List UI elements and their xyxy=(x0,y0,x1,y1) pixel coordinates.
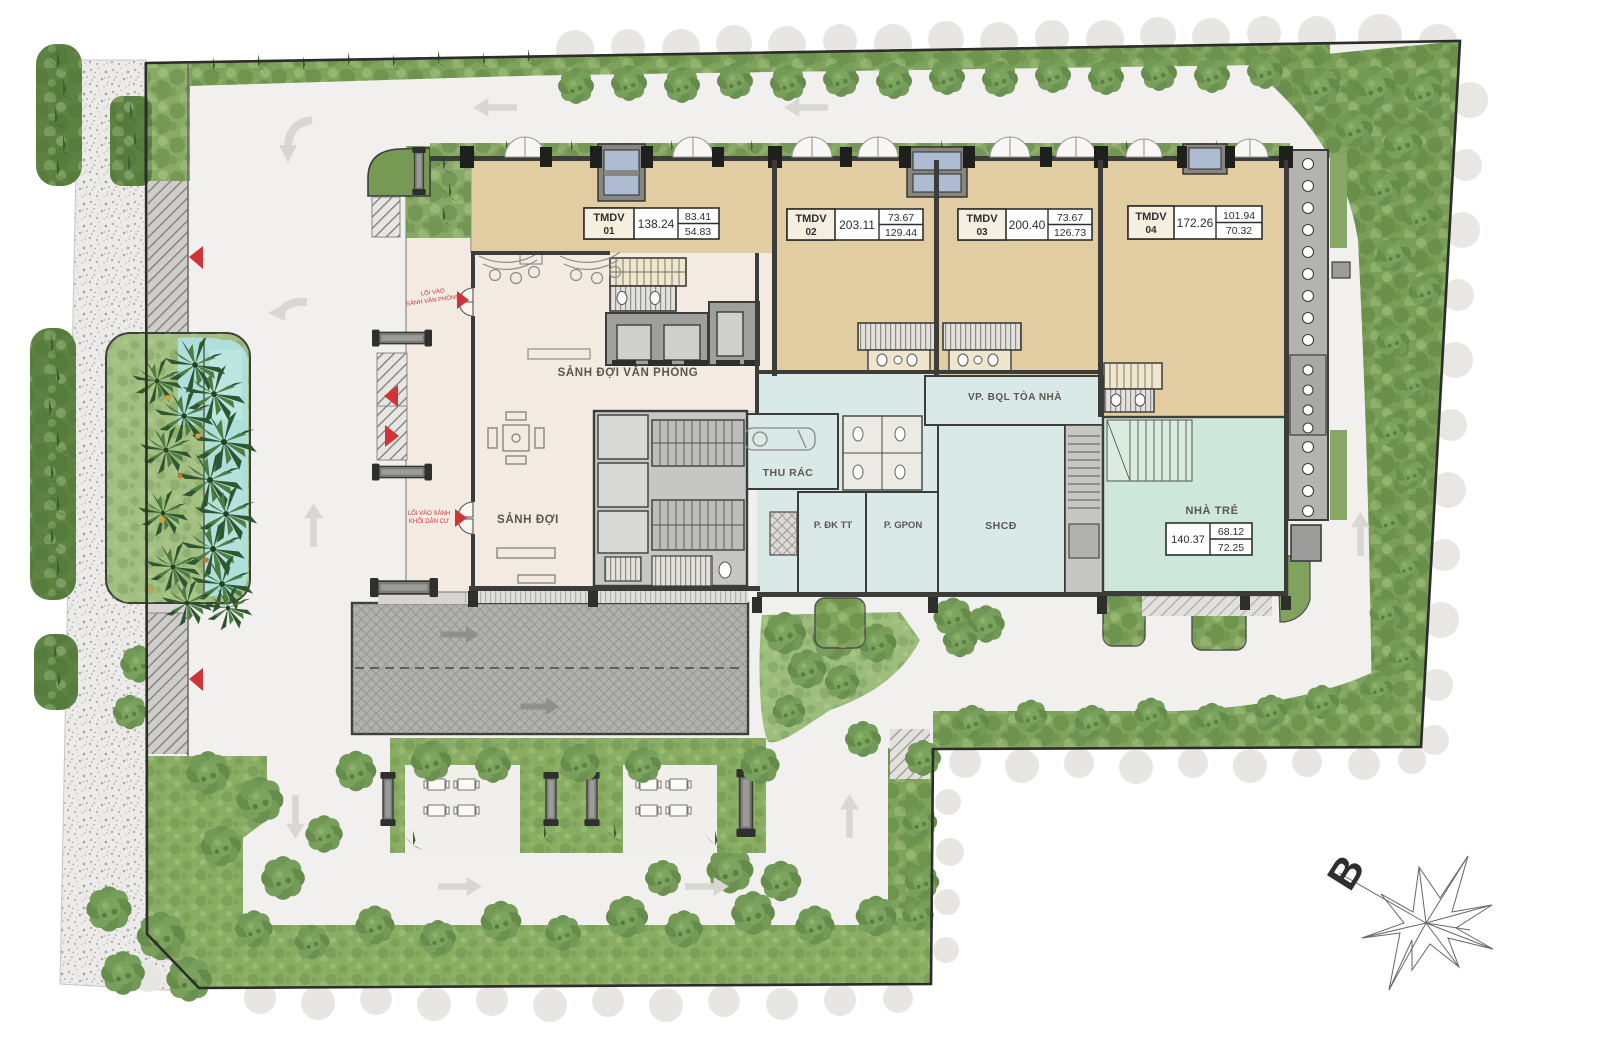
svg-text:172.26: 172.26 xyxy=(1177,216,1214,230)
svg-text:LỐI VÀO SẢNH: LỐI VÀO SẢNH xyxy=(408,510,450,517)
svg-text:54.83: 54.83 xyxy=(685,226,711,238)
svg-text:KHỐI DÂN CƯ: KHỐI DÂN CƯ xyxy=(409,518,449,525)
svg-text:140.37: 140.37 xyxy=(1171,534,1205,546)
svg-text:72.25: 72.25 xyxy=(1218,542,1244,554)
svg-text:P. GPON: P. GPON xyxy=(884,520,923,531)
svg-text:73.67: 73.67 xyxy=(888,212,914,224)
svg-text:83.41: 83.41 xyxy=(685,211,711,223)
svg-text:03: 03 xyxy=(976,227,988,238)
svg-text:P. ĐK TT: P. ĐK TT xyxy=(814,520,853,531)
svg-text:126.73: 126.73 xyxy=(1054,227,1086,239)
svg-text:68.12: 68.12 xyxy=(1218,526,1244,538)
svg-text:203.11: 203.11 xyxy=(839,218,875,232)
svg-text:THU RÁC: THU RÁC xyxy=(763,466,814,479)
svg-text:73.67: 73.67 xyxy=(1057,212,1083,224)
svg-text:TMDV: TMDV xyxy=(795,213,827,225)
svg-text:02: 02 xyxy=(805,227,817,238)
svg-text:TMDV: TMDV xyxy=(593,212,625,224)
svg-text:TMDV: TMDV xyxy=(1135,211,1167,223)
svg-text:SHCĐ: SHCĐ xyxy=(985,520,1017,532)
svg-text:70.32: 70.32 xyxy=(1226,225,1252,237)
svg-text:101.94: 101.94 xyxy=(1223,210,1255,222)
svg-text:04: 04 xyxy=(1145,225,1157,236)
svg-text:NHÀ TRẺ: NHÀ TRẺ xyxy=(1185,504,1238,517)
svg-text:SẢNH ĐỢI VĂN PHÒNG: SẢNH ĐỢI VĂN PHÒNG xyxy=(558,366,699,379)
svg-text:200.40: 200.40 xyxy=(1009,218,1046,232)
svg-text:01: 01 xyxy=(603,226,615,237)
svg-text:129.44: 129.44 xyxy=(885,227,917,239)
svg-text:138.24: 138.24 xyxy=(638,217,675,231)
svg-text:TMDV: TMDV xyxy=(966,213,998,225)
svg-text:VP. BQL TÒA NHÀ: VP. BQL TÒA NHÀ xyxy=(968,390,1062,403)
svg-text:SẢNH ĐỢI: SẢNH ĐỢI xyxy=(497,513,559,526)
